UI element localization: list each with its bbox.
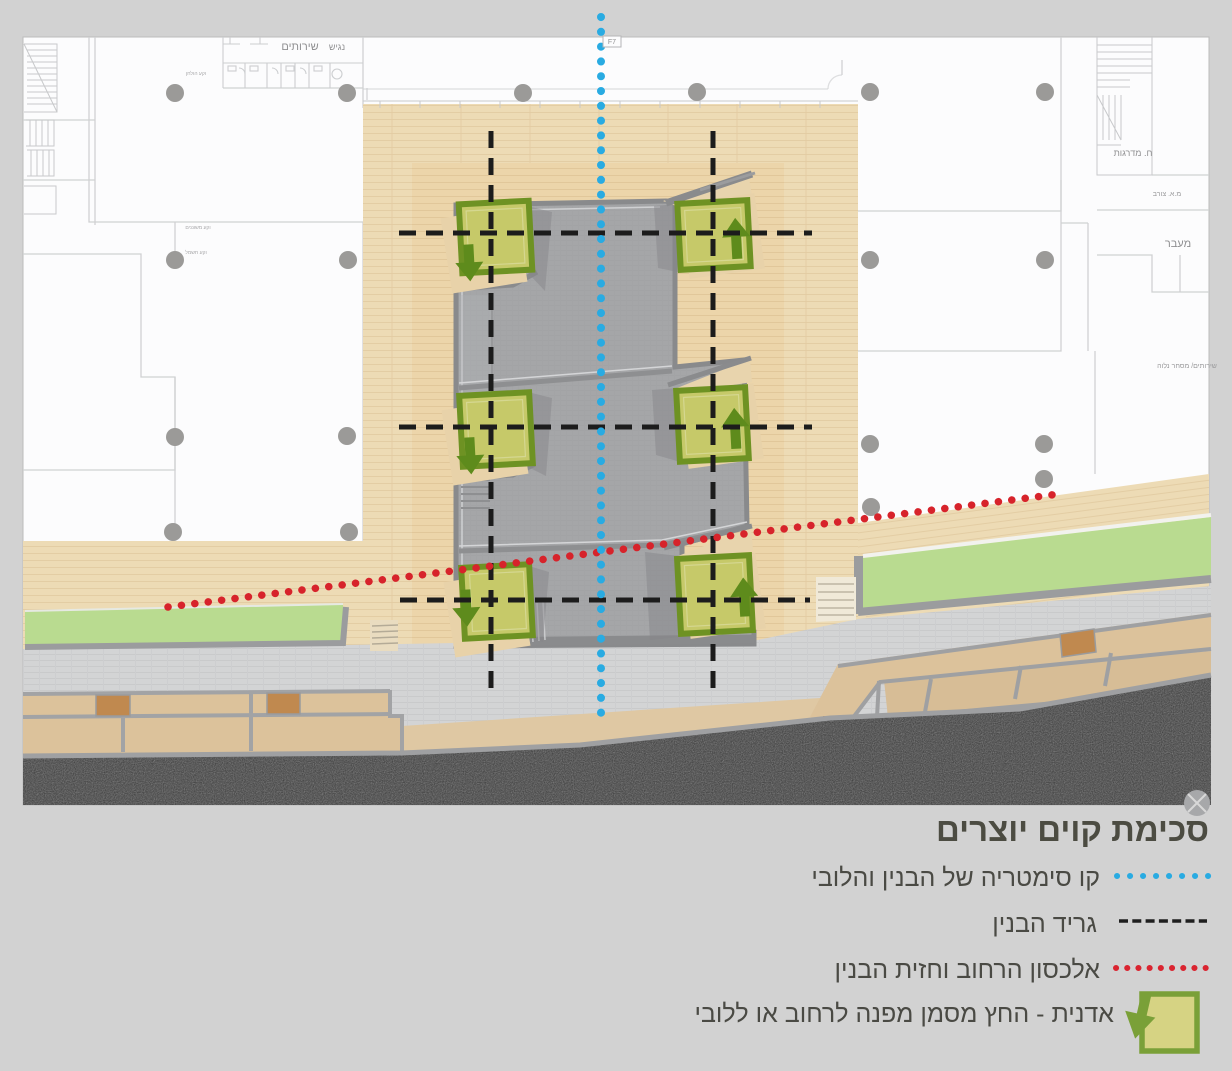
svg-text:גריד הבנין: גריד הבנין [992, 910, 1097, 938]
svg-text:אדנית - החץ מסמן מפנה לרחוב או: אדנית - החץ מסמן מפנה לרחוב או ללובי [694, 1000, 1114, 1028]
svg-text:נגיש: נגיש [329, 42, 345, 52]
svg-text:מ.א. צורב: מ.א. צורב [1153, 191, 1182, 198]
svg-text:ח. מדרגות: ח. מדרגות [1114, 148, 1153, 158]
svg-text:וקע חשמל: וקע חשמל [185, 249, 207, 256]
svg-text:אלכסון הרחוב וחזית הבנין: אלכסון הרחוב וחזית הבנין [835, 956, 1101, 984]
svg-text:וקע הולחן: וקע הולחן [186, 70, 206, 77]
svg-text:F7: F7 [608, 39, 616, 46]
svg-text:מעבר: מעבר [1165, 238, 1191, 250]
svg-text:שירותים/ מסחר נלוה: שירותים/ מסחר נלוה [1157, 362, 1217, 370]
svg-text:שירותים: שירותים [281, 41, 318, 53]
svg-text:סכימת קוים יוצרים: סכימת קוים יוצרים [936, 811, 1209, 848]
svg-text:וקע משוננים: וקע משוננים [185, 225, 210, 231]
svg-text:קו סימטריה של הבנין והלובי: קו סימטריה של הבנין והלובי [811, 864, 1100, 892]
